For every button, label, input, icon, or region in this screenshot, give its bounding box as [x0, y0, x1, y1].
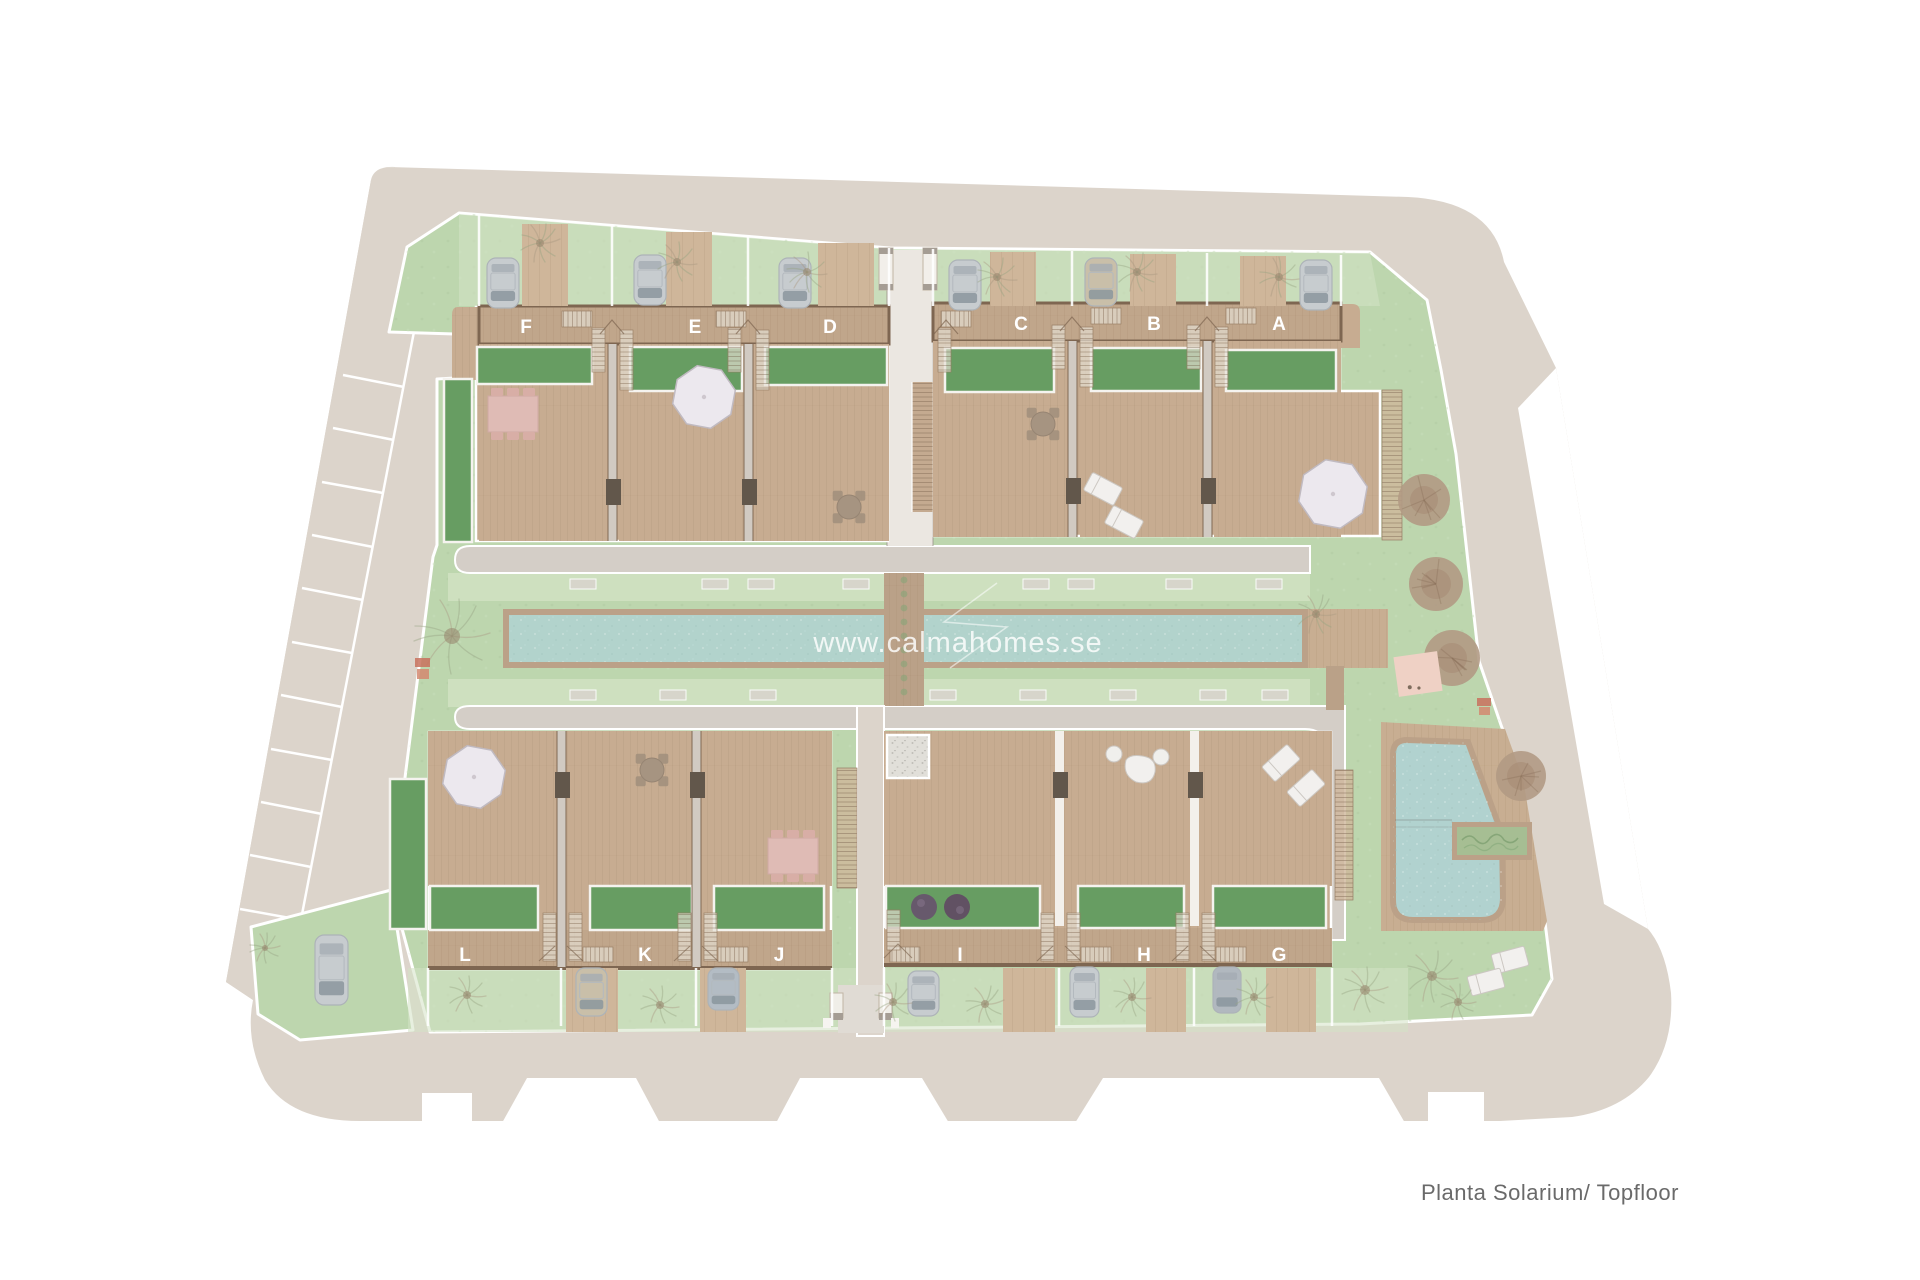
- svg-text:www.calmahomes.se: www.calmahomes.se: [812, 627, 1102, 659]
- svg-text:Planta Solarium/ Topfloor: Planta Solarium/ Topfloor: [1421, 1180, 1679, 1205]
